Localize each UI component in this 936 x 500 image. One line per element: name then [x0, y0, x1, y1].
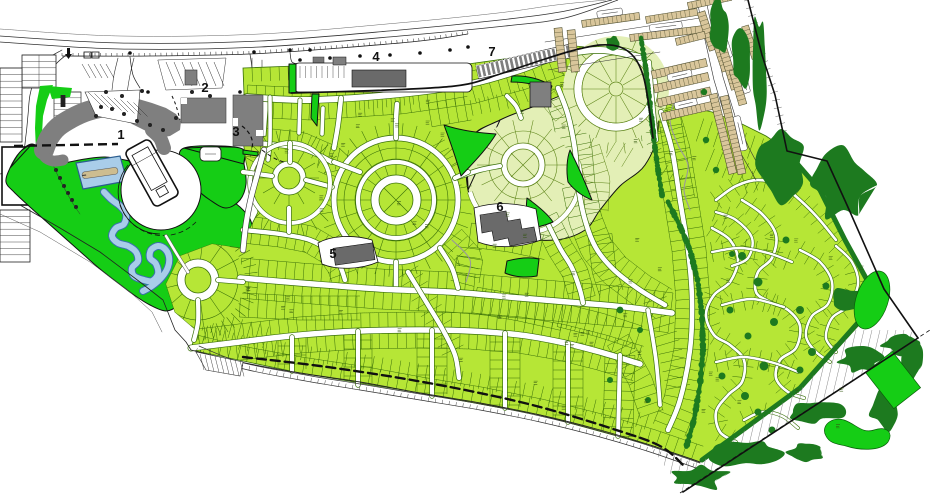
- svg-text:3: 3: [232, 124, 239, 139]
- svg-text:4: 4: [372, 49, 380, 64]
- svg-text:6: 6: [496, 199, 503, 214]
- svg-text:1: 1: [117, 127, 124, 142]
- svg-text:7: 7: [488, 44, 495, 59]
- svg-text:2: 2: [201, 80, 208, 95]
- svg-text:5: 5: [329, 246, 336, 261]
